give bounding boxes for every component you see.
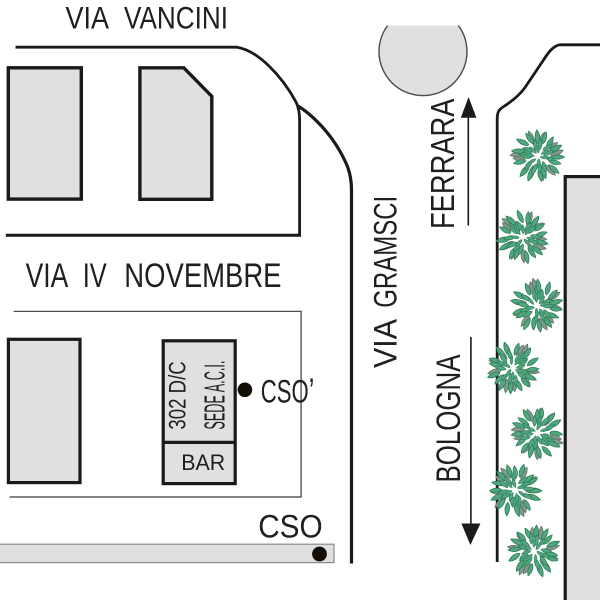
svg-text:302 D/C: 302 D/C bbox=[166, 361, 192, 429]
svg-text:FERRARA: FERRARA bbox=[424, 99, 461, 229]
svg-text:CSO’: CSO’ bbox=[261, 371, 315, 412]
svg-text:SEDE A.C.I.: SEDE A.C.I. bbox=[200, 361, 232, 430]
svg-text:NOVEMBRE: NOVEMBRE bbox=[124, 257, 281, 295]
svg-text:CSO: CSO bbox=[258, 509, 323, 545]
svg-text:BAR: BAR bbox=[181, 450, 225, 475]
svg-text:VANCINI: VANCINI bbox=[124, 0, 228, 36]
svg-text:BOLOGNA: BOLOGNA bbox=[430, 354, 468, 482]
svg-text:VIA: VIA bbox=[66, 0, 110, 36]
svg-text:VIA: VIA bbox=[367, 319, 403, 368]
svg-text:VIA: VIA bbox=[26, 257, 69, 295]
svg-text:GRAMSCI: GRAMSCI bbox=[367, 196, 403, 308]
svg-text:IV: IV bbox=[83, 257, 107, 295]
